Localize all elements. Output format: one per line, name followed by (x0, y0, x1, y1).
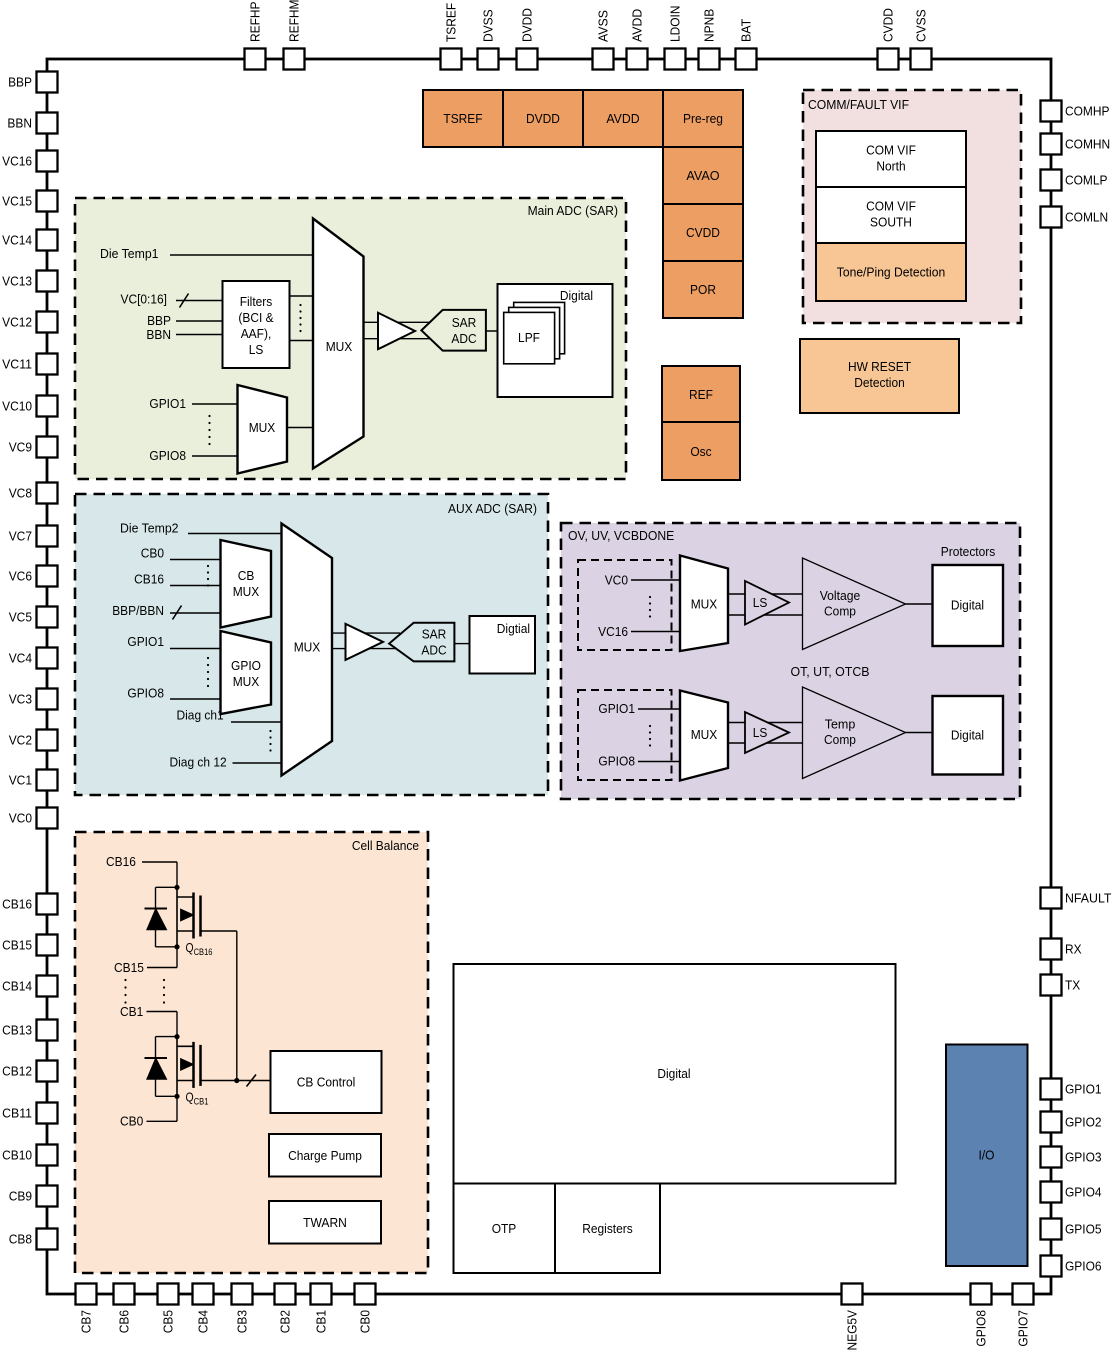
svg-text:VC0: VC0 (9, 811, 32, 826)
svg-text:CB15: CB15 (114, 960, 144, 975)
svg-text:VC12: VC12 (2, 315, 32, 330)
svg-text:CB8: CB8 (9, 1232, 32, 1247)
svg-text:CVDD: CVDD (686, 225, 720, 240)
svg-text:OT, UT, OTCB: OT, UT, OTCB (790, 664, 869, 679)
svg-text:BBN: BBN (7, 116, 32, 131)
svg-text:BBP: BBP (147, 313, 171, 328)
svg-text:SOUTH: SOUTH (870, 215, 912, 230)
svg-text:VC1: VC1 (9, 773, 32, 788)
svg-text:AVDD: AVDD (630, 9, 645, 42)
svg-text:GPIO1: GPIO1 (149, 396, 186, 411)
svg-text:VC10: VC10 (2, 399, 32, 414)
svg-text:COMHP: COMHP (1065, 104, 1110, 119)
svg-text:LS: LS (753, 595, 768, 610)
svg-text:GPIO5: GPIO5 (1065, 1222, 1102, 1237)
svg-text:CB Control: CB Control (297, 1075, 356, 1090)
svg-text:CB4: CB4 (196, 1310, 211, 1333)
svg-text:LS: LS (753, 725, 768, 740)
svg-text:Main ADC (SAR): Main ADC (SAR) (528, 203, 618, 218)
svg-text:Voltage: Voltage (820, 588, 861, 603)
svg-text:CB16: CB16 (134, 572, 164, 587)
svg-text:DVSS: DVSS (481, 9, 496, 42)
svg-text:NFAULT: NFAULT (1065, 891, 1112, 906)
svg-text:GPIO6: GPIO6 (1065, 1259, 1102, 1274)
svg-text:LPF: LPF (518, 330, 540, 345)
svg-text:MUX: MUX (691, 727, 718, 742)
svg-text:VC4: VC4 (9, 651, 32, 666)
svg-text:SAR: SAR (452, 315, 477, 330)
svg-text:North: North (876, 159, 905, 174)
svg-text:GPIO1: GPIO1 (1065, 1082, 1102, 1097)
svg-text:CB1: CB1 (120, 1004, 143, 1019)
svg-text:CB7: CB7 (79, 1310, 94, 1333)
svg-text:REFHM: REFHM (287, 0, 302, 42)
svg-text:Cell Balance: Cell Balance (352, 838, 419, 853)
svg-text:Filters: Filters (240, 294, 273, 309)
svg-text:VC9: VC9 (9, 440, 32, 455)
svg-text:GPIO7: GPIO7 (1016, 1310, 1031, 1347)
svg-text:CB11: CB11 (2, 1106, 32, 1121)
svg-text:REFHP: REFHP (248, 2, 263, 43)
svg-text:ADC: ADC (421, 643, 446, 658)
svg-text:CVSS: CVSS (914, 9, 929, 42)
svg-text:BBN: BBN (146, 327, 171, 342)
svg-text:BBP: BBP (8, 75, 32, 90)
svg-text:AVAO: AVAO (686, 168, 719, 183)
svg-text:NPNB: NPNB (702, 9, 717, 42)
svg-text:CB6: CB6 (117, 1310, 132, 1333)
svg-text:Die Temp1: Die Temp1 (100, 246, 159, 261)
svg-text:CB0: CB0 (120, 1114, 143, 1129)
svg-text:NEG5V: NEG5V (845, 1310, 860, 1351)
svg-text:Tone/Ping Detection: Tone/Ping Detection (837, 265, 945, 280)
svg-text:COM VIF: COM VIF (866, 143, 916, 158)
svg-text:COMLN: COMLN (1065, 210, 1108, 225)
svg-text:AVDD: AVDD (606, 111, 639, 126)
svg-text:GPIO8: GPIO8 (598, 754, 635, 769)
svg-text:GPIO8: GPIO8 (127, 686, 164, 701)
svg-text:AAF),: AAF), (241, 326, 272, 341)
svg-text:CB16: CB16 (2, 897, 32, 912)
svg-text:Protectors: Protectors (941, 544, 996, 559)
svg-text:BBP/BBN: BBP/BBN (112, 603, 164, 618)
svg-text:VC3: VC3 (9, 692, 32, 707)
svg-text:VC8: VC8 (9, 486, 32, 501)
svg-text:AVSS: AVSS (596, 10, 611, 42)
svg-text:Digital: Digital (657, 1066, 690, 1081)
svg-text:Temp: Temp (825, 717, 856, 732)
svg-text:CB14: CB14 (2, 979, 32, 994)
svg-text:SAR: SAR (422, 627, 447, 642)
svg-text:HW RESET: HW RESET (848, 359, 911, 374)
svg-text:Charge Pump: Charge Pump (288, 1148, 362, 1163)
svg-text:LS: LS (249, 342, 264, 357)
svg-text:Comp: Comp (824, 604, 856, 619)
svg-text:CB15: CB15 (2, 938, 32, 953)
svg-text:MUX: MUX (233, 584, 260, 599)
svg-text:Detection: Detection (854, 375, 905, 390)
svg-text:RX: RX (1065, 942, 1082, 957)
svg-text:TSREF: TSREF (444, 3, 459, 42)
svg-text:COMHN: COMHN (1065, 137, 1110, 152)
svg-text:LDOIN: LDOIN (668, 6, 683, 43)
svg-text:CB5: CB5 (161, 1310, 176, 1333)
svg-text:Digital: Digital (560, 288, 593, 303)
svg-text:CB: CB (238, 568, 255, 583)
svg-text:VC6: VC6 (9, 569, 32, 584)
svg-text:COMLP: COMLP (1065, 173, 1108, 188)
svg-text:GPIO1: GPIO1 (598, 701, 635, 716)
svg-text:Comp: Comp (824, 732, 856, 747)
svg-text:TWARN: TWARN (303, 1215, 347, 1230)
svg-text:VC13: VC13 (2, 274, 32, 289)
svg-text:POR: POR (690, 282, 716, 297)
svg-text:VC7: VC7 (9, 529, 32, 544)
svg-text:GPIO2: GPIO2 (1065, 1115, 1102, 1130)
svg-text:TSREF: TSREF (443, 111, 482, 126)
svg-text:GPIO: GPIO (231, 658, 261, 673)
svg-text:MUX: MUX (326, 339, 353, 354)
svg-text:REF: REF (689, 387, 713, 402)
svg-text:VC5: VC5 (9, 610, 32, 625)
svg-text:MUX: MUX (249, 420, 276, 435)
svg-text:COMM/FAULT VIF: COMM/FAULT VIF (808, 97, 909, 112)
svg-text:VC16: VC16 (598, 624, 628, 639)
svg-text:VC16: VC16 (2, 154, 32, 169)
svg-text:Registers: Registers (582, 1221, 633, 1236)
svg-text:Digital: Digital (951, 598, 984, 613)
svg-text:GPIO8: GPIO8 (149, 448, 186, 463)
svg-text:I/O: I/O (979, 1148, 995, 1163)
svg-text:GPIO8: GPIO8 (974, 1310, 989, 1347)
svg-text:MUX: MUX (294, 640, 321, 655)
svg-text:CB1: CB1 (314, 1310, 329, 1333)
svg-text:CB16: CB16 (106, 854, 136, 869)
svg-text:DVDD: DVDD (526, 111, 560, 126)
svg-text:CB12: CB12 (2, 1064, 32, 1079)
svg-text:CVDD: CVDD (881, 8, 896, 42)
svg-text:COM VIF: COM VIF (866, 199, 916, 214)
svg-text:GPIO1: GPIO1 (127, 634, 164, 649)
svg-text:CB0: CB0 (141, 546, 164, 561)
svg-text:Osc: Osc (690, 444, 712, 459)
svg-text:CB13: CB13 (2, 1023, 32, 1038)
svg-text:Diag ch 12: Diag ch 12 (170, 755, 227, 770)
svg-text:VC14: VC14 (2, 233, 32, 248)
svg-text:Diag ch1: Diag ch1 (177, 708, 224, 723)
svg-text:CB10: CB10 (2, 1148, 32, 1163)
svg-text:MUX: MUX (691, 597, 718, 612)
svg-text:CB3: CB3 (235, 1310, 250, 1333)
svg-text:VC15: VC15 (2, 194, 32, 209)
svg-text:DVDD: DVDD (520, 8, 535, 42)
svg-text:AUX ADC (SAR): AUX ADC (SAR) (448, 501, 537, 516)
svg-text:VC0: VC0 (605, 573, 628, 588)
svg-text:VC11: VC11 (2, 357, 32, 372)
svg-text:Digtial: Digtial (497, 621, 530, 636)
svg-text:OTP: OTP (492, 1221, 517, 1236)
svg-text:BAT: BAT (739, 19, 754, 42)
svg-text:VC[0:16]: VC[0:16] (121, 292, 168, 307)
svg-text:TX: TX (1065, 978, 1081, 993)
svg-text:VC2: VC2 (9, 733, 32, 748)
svg-text:Pre-reg: Pre-reg (683, 111, 723, 126)
svg-text:(BCI &: (BCI & (238, 310, 273, 325)
svg-text:ADC: ADC (451, 331, 476, 346)
svg-text:GPIO3: GPIO3 (1065, 1150, 1102, 1165)
svg-text:MUX: MUX (233, 674, 260, 689)
svg-text:CB0: CB0 (358, 1310, 373, 1333)
svg-text:Die Temp2: Die Temp2 (120, 521, 179, 536)
svg-text:OV, UV, VCBDONE: OV, UV, VCBDONE (568, 528, 675, 543)
svg-text:CB9: CB9 (9, 1189, 32, 1204)
svg-text:Digital: Digital (951, 728, 984, 743)
svg-text:GPIO4: GPIO4 (1065, 1185, 1102, 1200)
svg-text:CB2: CB2 (278, 1310, 293, 1333)
